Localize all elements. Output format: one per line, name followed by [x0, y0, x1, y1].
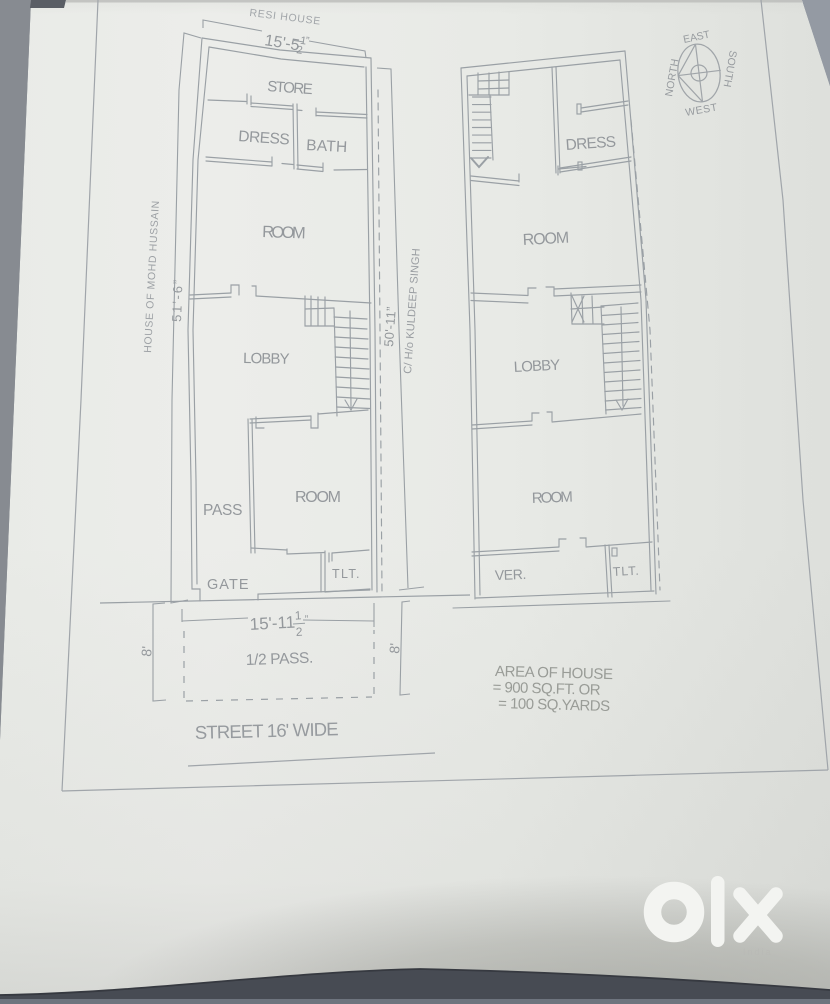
svg-text:STREET 16' WIDE: STREET 16' WIDE [195, 718, 340, 743]
svg-text:50'-11”: 50'-11” [381, 306, 399, 347]
svg-text:1/2 PASS.: 1/2 PASS. [246, 650, 315, 669]
svg-text:PASS: PASS [203, 502, 244, 519]
svg-text:8': 8' [138, 645, 155, 657]
svg-text:ROOM: ROOM [295, 489, 342, 506]
svg-text:LOBBY: LOBBY [243, 350, 291, 368]
svg-text:TLT.: TLT. [332, 567, 360, 581]
svg-text:ROOM: ROOM [262, 223, 308, 243]
svg-text:ROOM: ROOM [522, 230, 571, 249]
svg-text:= 100 SQ.YARDS: = 100 SQ.YARDS [498, 695, 610, 715]
svg-text:2: 2 [295, 625, 303, 639]
svg-text:DRESS: DRESS [565, 133, 618, 154]
svg-text:8': 8' [386, 642, 403, 654]
svg-text:LOBBY: LOBBY [513, 357, 562, 376]
svg-text:TLT.: TLT. [612, 564, 639, 579]
svg-text:ROOM: ROOM [532, 489, 575, 507]
svg-text:STORE: STORE [267, 78, 315, 98]
svg-text:BATH: BATH [306, 137, 349, 156]
svg-text:GATE: GATE [207, 577, 250, 593]
svg-text:India: India [743, 947, 773, 957]
svg-text:VER.: VER. [495, 566, 528, 583]
